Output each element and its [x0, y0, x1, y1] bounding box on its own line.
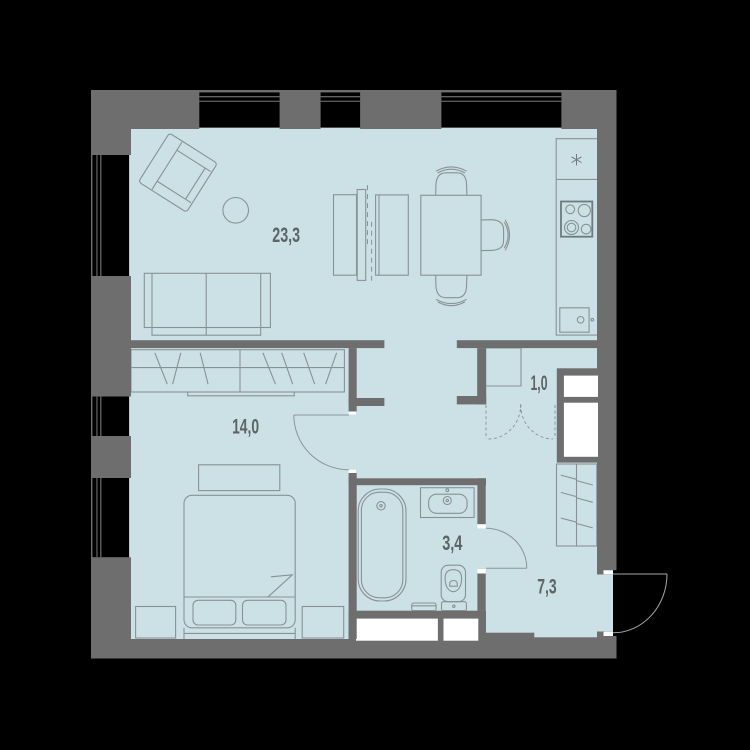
svg-text:3,4: 3,4 [442, 532, 462, 555]
svg-text:1,0: 1,0 [531, 372, 548, 395]
svg-text:14,0: 14,0 [232, 416, 259, 439]
svg-text:23,3: 23,3 [272, 224, 300, 247]
svg-text:7,3: 7,3 [537, 576, 556, 599]
